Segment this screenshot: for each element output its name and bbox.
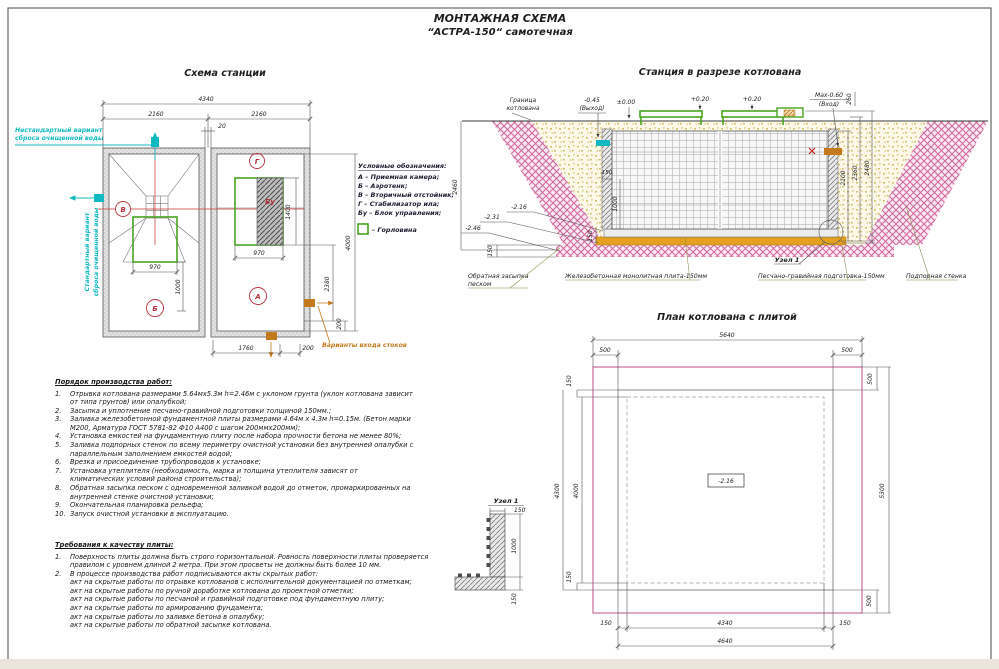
item-text: Обратная засыпка песком с одновременной … [70,484,410,501]
pit-dim-500-tr: 500 [841,347,853,354]
item-number: 1. [55,553,70,562]
sheet-title: МОНТАЖНАЯ СХЕМА [434,12,567,25]
work-order-item: 10.Запуск очистной установки в эксплуата… [55,510,515,519]
pit-dim-4000: 4000 [573,483,580,498]
item-number: 2. [55,570,70,579]
item-number: 7. [55,467,70,476]
item-text: Засыпка и уплотнение песчано-гравийной п… [70,407,331,416]
compartment-g: Г [255,158,260,166]
cross-section-title: Станция в разрезе котлована [639,67,801,78]
note-nonstandard-line1: Нестандартный вариант [15,127,103,134]
control-unit-box [257,178,283,245]
soil-bottom [556,245,894,257]
pit-dim-4340: 4340 [717,620,732,627]
item-number: 5. [55,441,70,450]
item-number: 4. [55,432,70,441]
work-order-item: 5.Заливка подпорных стенок по всему пери… [55,441,515,458]
level-max: Max-0.60 [815,92,843,99]
pit-dim-500-tl: 500 [599,347,611,354]
legend-title: Условные обозначения: [358,162,447,170]
dim-2100: 2100 [840,170,847,185]
work-order-item: 3.Заливка железобетонной фундаментной пл… [55,415,515,432]
callout-plate: Железобетонная монолитная плита-150мм [564,272,707,280]
compartment-bu: Бу [265,198,275,206]
item-number: 10. [55,510,70,519]
vent-grate [784,110,795,116]
plan-dim-4340: 4340 [198,96,213,103]
item-text: Заливка подпорных стенок по всему периме… [70,441,413,458]
quality-title: Требования к качеству плиты: [55,541,515,550]
dim-2480: 2480 [864,160,871,175]
level-plus020-a: +0.20 [691,96,710,103]
item-text: Окончательная планировка рельефа; [70,501,203,510]
dim-2360: 2360 [852,165,859,180]
work-order-item: 4.Установка емкостей на фундаментную пли… [55,432,515,441]
item-text: Установка утеплителя (необходимость, мар… [70,467,358,484]
pit-dim-4300: 4300 [554,483,561,498]
callout-node1: Узел 1 [775,256,800,264]
legend: Условные обозначения: А – Приемная камер… [357,162,455,234]
plan-dim-970-left: 970 [149,264,161,271]
sheet-subtitle: “АСТРА-150“ самотечная [427,27,573,38]
level-plus020-b: +0.20 [743,96,762,103]
station-plan-title: Схема станции [184,68,266,79]
level-231: -2.31 [484,214,500,221]
dim-2460: 2460 [452,179,459,194]
compartment-v: В [120,206,125,214]
legend-item-g: Г – Стабилизатор ила; [358,200,440,208]
work-order-item: 8.Обратная засыпка песком с одновременно… [55,484,515,501]
concrete-plate [604,229,838,237]
level-max-in: (Вход) [819,101,839,108]
work-order-item: 2.Засыпка и уплотнение песчано-гравийной… [55,407,515,416]
note-inlet-options: Варианты входа стоков [322,342,407,349]
pit-level: -2.16 [718,478,734,485]
pit-boundary-label1: Граница [510,97,537,104]
drawing-sheet: МОНТАЖНАЯ СХЕМА “АСТРА-150“ самотечная С… [0,0,999,669]
inlet-leader [318,306,330,343]
level-zero: ±0.00 [617,99,636,106]
pit-dim-150-bl: 150 [600,620,612,627]
work-order-item: 9.Окончательная планировка рельефа; [55,501,515,510]
dim-150-base: 150 [587,230,594,242]
pit-dim-4640: 4640 [717,638,732,645]
level-out2: (Выход) [580,105,605,112]
pit-dim-5640: 5640 [719,332,734,339]
pit-plan: План котлована с плитой -2.16 5640 [554,312,891,650]
callout-wall: Подпорная стенка [906,273,967,280]
inlet-pipe [824,148,842,155]
quality-item: 2.В процессе производства работ подписыв… [55,570,515,630]
legend-item-b: Б – Аэротенк; [358,182,408,190]
dim-150-wall: 150 [602,170,613,176]
note-standard-line1: Стандартный вариант [84,212,91,291]
pit-dim-150-lt: 150 [566,375,573,387]
pit-dim-150-br: 150 [839,620,851,627]
work-order-item: 6.Врезка и присоединение трубопроводов к… [55,458,515,467]
item-number: 6. [55,458,70,467]
legend-neck-icon [358,224,368,234]
plan-dim-2380: 2380 [324,276,331,291]
inlet-bottom [266,332,277,340]
pit-plan-title: План котлована с плитой [657,312,797,323]
level-246: -2.46 [465,225,481,232]
inlet-right [304,299,315,307]
node-dim-150-top: 150 [514,507,526,514]
gravel-prep-layer [596,237,846,245]
plan-dim-2160-right: 2160 [251,111,266,118]
level-out1: -0.45 [584,97,600,104]
note-standard-line2: сброса очищенной воды [92,207,100,296]
station-plan: Схема станции В Б Г А [15,68,455,357]
plan-dim-1760: 1760 [238,345,253,352]
plan-dim-1400: 1400 [285,204,292,219]
quality-item: 1.Поверхность плиты должна быть строго г… [55,553,515,570]
plan-dim-2160-left: 2160 [148,111,163,118]
callout-backfill2: песком [468,281,492,288]
callout-prep: Песчано-гравийная подготовка-150мм [758,273,885,280]
work-order-item: 7.Установка утеплителя (необходимость, м… [55,467,515,484]
legend-item-v: В – Вторичный отстойник; [358,191,455,199]
plan-dim-4000: 4000 [345,235,352,250]
item-number: 3. [55,415,70,424]
item-text: Поверхность плиты должна быть строго гор… [70,553,428,570]
pit-dim-500-rb: 500 [866,595,873,607]
pit-dim-5300: 5300 [879,483,886,498]
item-number: 2. [55,407,70,416]
legend-item-bu: Бу – Блок управления; [358,209,442,217]
pit-dim-500-rt: 500 [867,373,874,385]
dim-260: 260 [846,93,853,105]
pit-outline [593,367,862,613]
cross-section: Станция в разрезе котлована [452,67,988,288]
item-text: В процессе производства работ подписываю… [70,570,412,630]
plan-dim-20: 20 [218,123,226,130]
dim-1000-wall: 1000 [612,196,619,211]
callout-backfill1: Обратная засыпка [468,272,529,280]
work-order-title: Порядок производства работ: [55,378,515,387]
item-number: 1. [55,390,70,399]
dim-150-band: 150 [487,245,494,257]
item-number: 9. [55,501,70,510]
item-text: Запуск очистной установки в эксплуатацию… [70,510,229,519]
work-order-item: 1.Отрывка котлована размерами 5.64мх5.3м… [55,390,515,407]
compartment-b: Б [152,305,157,313]
sheet-margin [0,659,999,669]
outlet-pipe [596,140,610,146]
note-nonstandard-line2: сброса очищенной воды [15,134,104,142]
level-216: -2.16 [511,204,527,211]
compartment-a: А [254,293,260,301]
item-text: Врезка и присоединение трубопроводов к у… [70,458,261,467]
quality-block: Требования к качеству плиты: 1.Поверхнос… [55,541,515,630]
pit-dim-150-lb: 150 [566,571,573,583]
item-text: Заливка железобетонной фундаментной плит… [70,415,411,432]
legend-item-a: А – Приемная камера; [357,173,440,181]
plan-dim-200-bottom: 200 [302,345,314,352]
pit-boundary-label2: котлована [506,105,539,112]
legend-item-gorlovina: – Горловина [372,226,417,234]
retaining-wall-right [828,129,838,229]
item-number: 8. [55,484,70,493]
plan-dim-200-right: 200 [336,318,343,330]
plan-dim-1000: 1000 [175,279,182,294]
item-text: Установка емкостей на фундаментную плиту… [70,432,401,441]
item-text: Отрывка котлована размерами 5.64мх5.3м h… [70,390,413,407]
plan-dim-970-right: 970 [253,250,265,257]
work-order-block: Порядок производства работ: 1.Отрывка ко… [55,378,515,518]
